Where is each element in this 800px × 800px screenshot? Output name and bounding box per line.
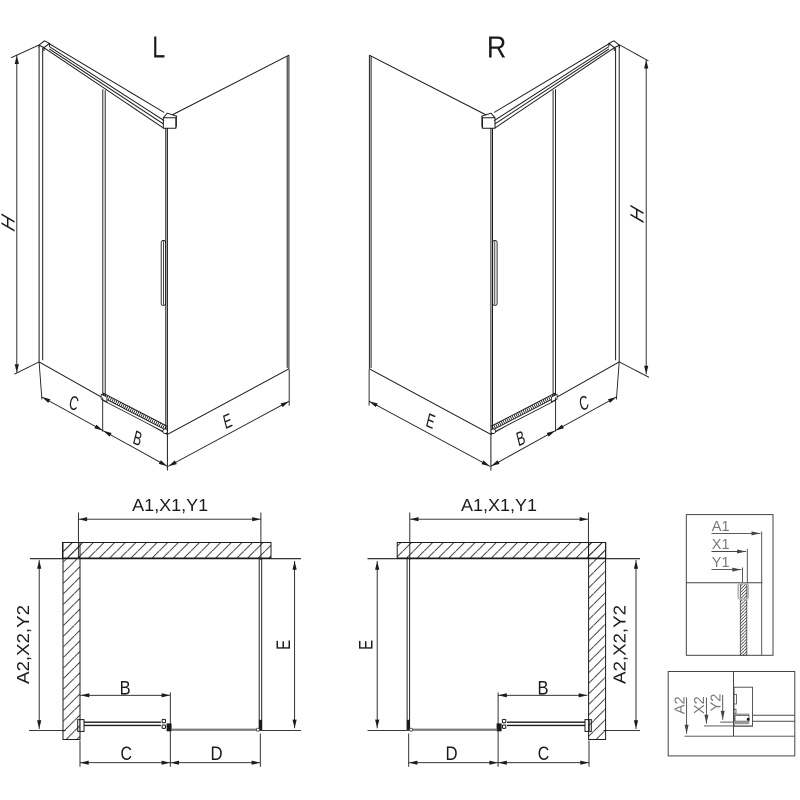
svg-text:C: C <box>120 744 132 765</box>
svg-text:H: H <box>627 201 648 227</box>
svg-text:L: L <box>152 29 165 64</box>
svg-text:A2: A2 <box>672 696 688 714</box>
svg-text:A2,X2,Y2: A2,X2,Y2 <box>610 605 630 684</box>
svg-text:B: B <box>120 678 131 699</box>
svg-text:C: C <box>538 744 550 765</box>
svg-text:E: E <box>356 640 378 650</box>
svg-text:C: C <box>67 390 81 416</box>
svg-text:X2: X2 <box>692 696 708 714</box>
svg-text:D: D <box>210 744 222 765</box>
svg-text:A2,X2,Y2: A2,X2,Y2 <box>13 605 33 684</box>
svg-text:D: D <box>446 744 458 765</box>
svg-text:C: C <box>577 390 591 416</box>
svg-text:E: E <box>273 640 295 650</box>
svg-text:B: B <box>131 426 144 451</box>
svg-text:Y1: Y1 <box>712 555 730 571</box>
svg-text:A1,X1,Y1: A1,X1,Y1 <box>461 495 537 515</box>
svg-text:E: E <box>424 409 437 434</box>
svg-text:X1: X1 <box>712 537 730 553</box>
svg-text:R: R <box>487 29 507 64</box>
svg-text:E: E <box>221 409 234 434</box>
svg-text:A1,X1,Y1: A1,X1,Y1 <box>132 495 208 515</box>
svg-text:B: B <box>514 426 527 451</box>
svg-text:B: B <box>538 678 549 699</box>
svg-text:H: H <box>0 210 19 236</box>
svg-text:A1: A1 <box>712 519 730 535</box>
svg-text:Y2: Y2 <box>708 694 724 712</box>
